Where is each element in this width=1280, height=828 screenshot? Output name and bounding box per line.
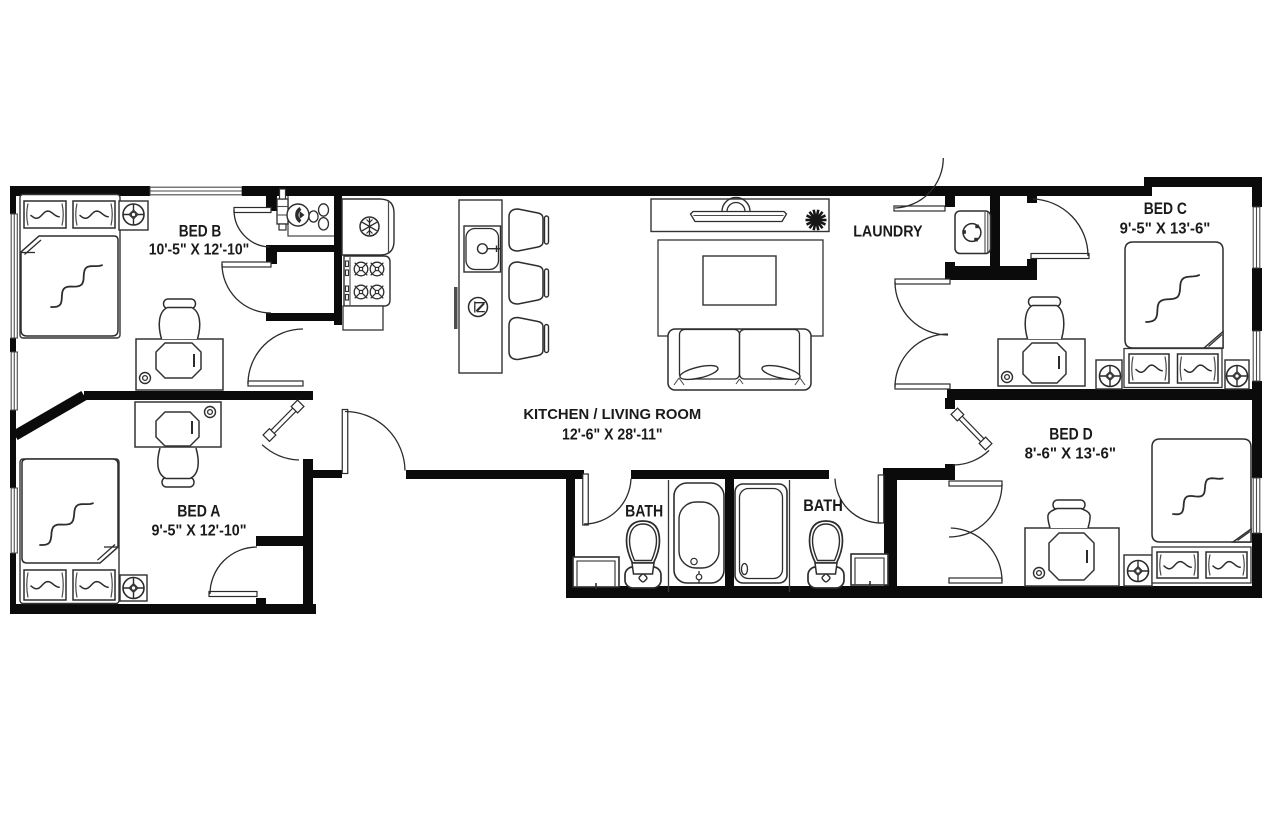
svg-text:9'-5" X 12'-10": 9'-5" X 12'-10" (151, 522, 246, 539)
svg-text:BED C: BED C (1144, 200, 1187, 218)
svg-text:10'-5" X 12'-10": 10'-5" X 12'-10" (149, 242, 250, 259)
svg-text:BATH: BATH (625, 503, 663, 521)
svg-text:BED A: BED A (177, 503, 220, 521)
svg-text:8'-6" X 13'-6": 8'-6" X 13'-6" (1025, 446, 1116, 463)
svg-text:KITCHEN / LIVING ROOM: KITCHEN / LIVING ROOM (523, 406, 701, 423)
svg-text:9'-5" X 13'-6": 9'-5" X 13'-6" (1120, 220, 1211, 237)
svg-text:LAUNDRY: LAUNDRY (853, 224, 923, 241)
svg-text:BATH: BATH (803, 497, 843, 515)
svg-text:BED D: BED D (1049, 425, 1092, 443)
svg-text:BED B: BED B (179, 222, 222, 240)
svg-text:12'-6" X 28'-11": 12'-6" X 28'-11" (562, 426, 663, 443)
